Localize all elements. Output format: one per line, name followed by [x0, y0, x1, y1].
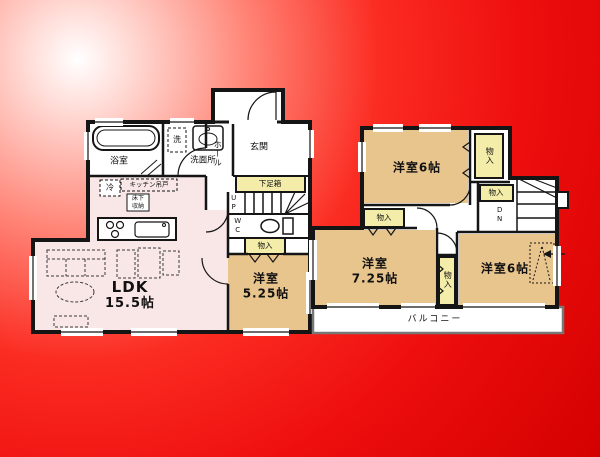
washing-machine-label: 洗: [173, 136, 181, 144]
hall-label: ホール: [213, 141, 221, 168]
floor-storage-label-2: 収納: [132, 204, 144, 210]
fridge-label: 冷: [106, 184, 114, 192]
floor1-plan: 浴室 洗 洗面所 ホール 玄関 下足箱 UP WC 物入 冷 キッチン吊戸 床下…: [33, 88, 310, 334]
closet-2f-d-label: 物入: [443, 271, 451, 289]
closet-2f-b-label: 物入: [489, 189, 504, 197]
kitchen-shelf-label: キッチン吊戸: [130, 182, 169, 189]
bedroom-2f-b-name-label: 洋室: [362, 258, 388, 271]
stairs-dn-label: DN: [495, 206, 502, 224]
ldk-name-label: LDK: [112, 280, 149, 296]
entrance-label: 玄関: [250, 143, 268, 152]
shoebox-label: 下足箱: [259, 180, 282, 188]
ldk-size-label: 15.5帖: [105, 297, 155, 311]
bath-label: 浴室: [110, 157, 128, 166]
floor-storage-label-1: 床下: [132, 196, 144, 202]
balcony-label: バルコニー: [408, 315, 463, 324]
closet-2f-a-label: 物入: [485, 147, 493, 165]
bedroom-2f-a-label: 洋室6帖: [393, 162, 441, 175]
wc-label: WC: [233, 217, 240, 235]
bedroom-1f-name-label: 洋室: [253, 273, 279, 286]
stairs-up-label: UP: [229, 194, 236, 212]
bedroom-2f-c-label: 洋室6帖: [481, 263, 529, 276]
closet-2f-c-label: 物入: [377, 214, 392, 222]
bedroom-2f-b-size-label: 7.25帖: [352, 273, 399, 286]
floor2-plan: 洋室6帖 物入 物入 DN 物入 洋室 7.25帖 物入 洋室6帖 バルコニー: [313, 128, 565, 333]
floorplan-canvas: { "colors": { "wall": "#151515", "white"…: [0, 0, 600, 457]
floor2-drawing: [308, 123, 570, 338]
bedroom-1f-size-label: 5.25帖: [243, 288, 290, 301]
closet-1f-label: 物入: [258, 242, 273, 250]
